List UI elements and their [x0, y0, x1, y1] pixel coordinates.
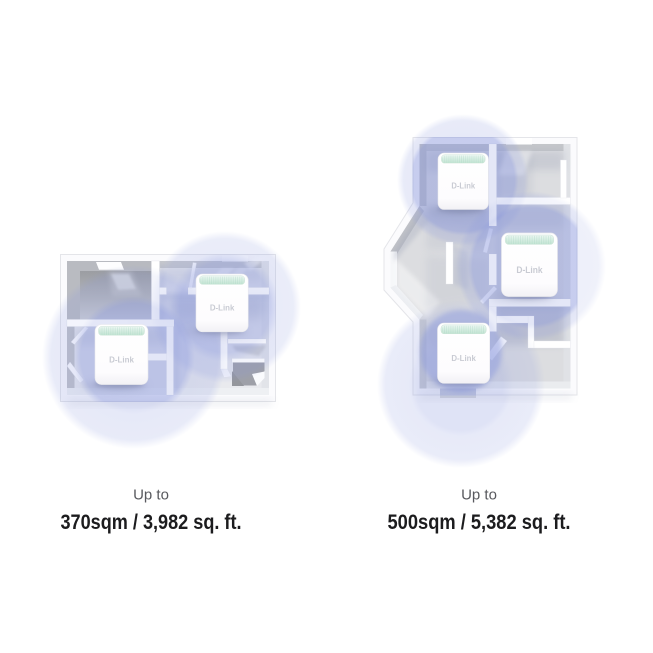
- svg-text:Up to: Up to: [133, 487, 169, 504]
- svg-text:500sqm / 5,382 sq. ft.: 500sqm / 5,382 sq. ft.: [388, 511, 571, 534]
- svg-text:370sqm / 3,982 sq. ft.: 370sqm / 3,982 sq. ft.: [61, 511, 242, 534]
- svg-text:Up to: Up to: [461, 487, 497, 504]
